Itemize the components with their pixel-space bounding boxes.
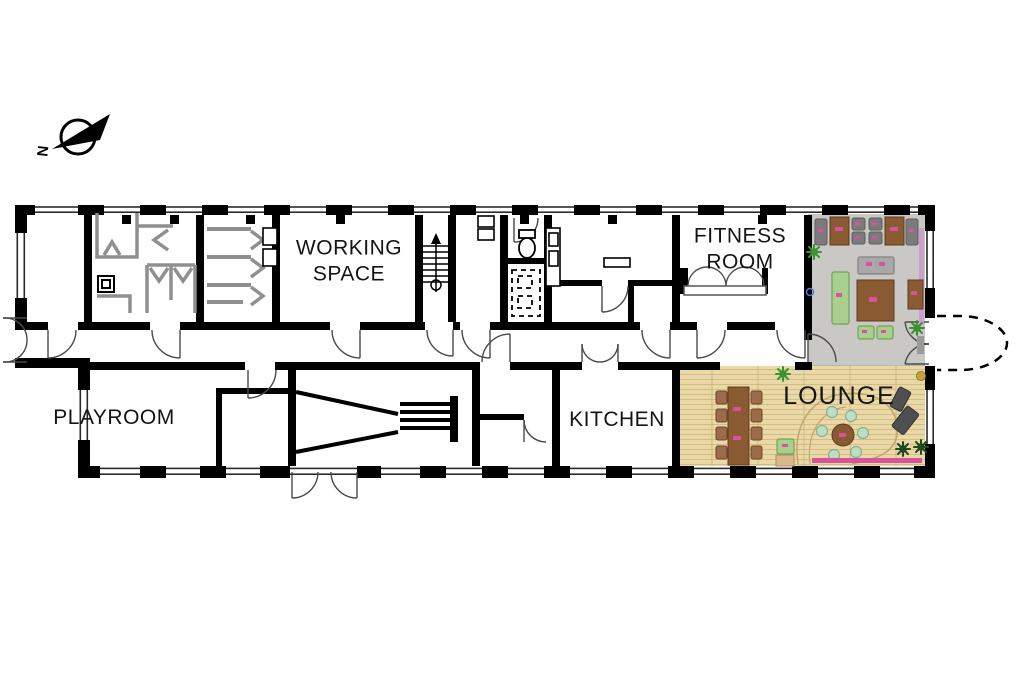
fitness-closet-shelf [684, 286, 766, 295]
pink-runner [812, 458, 922, 463]
wc-toilet [519, 230, 535, 258]
service-shaft [512, 270, 540, 316]
restroom-fixtures [98, 228, 277, 292]
floor-plan-canvas [0, 0, 1023, 682]
staircase [423, 233, 448, 292]
stair-direction-arrow [431, 233, 441, 244]
room-label-working-space: WORKING SPACE [296, 235, 402, 286]
restroom-partitions [97, 213, 263, 313]
sofa-gray [858, 257, 894, 274]
room-label-lounge: LOUNGE [783, 381, 895, 412]
room-label-playroom: PLAYROOM [53, 405, 174, 431]
room-label-fitness-room: FITNESS ROOM [694, 223, 786, 274]
dashed-driveway [937, 316, 1007, 370]
corridor-walls [27, 322, 812, 370]
sofa-green [832, 272, 849, 324]
room-label-kitchen: KITCHEN [569, 407, 665, 433]
north-compass-icon [52, 114, 110, 154]
basket [917, 372, 926, 381]
floor-plan-page: WORKING SPACE FITNESS ROOM PLAYROOM KITC… [0, 0, 1023, 682]
privacy-screen [919, 228, 924, 324]
vestibule-steps [400, 402, 450, 430]
compass-north-label: N [33, 145, 51, 158]
lounge-tan-table [776, 455, 794, 466]
entrance-vestibule [296, 392, 450, 452]
